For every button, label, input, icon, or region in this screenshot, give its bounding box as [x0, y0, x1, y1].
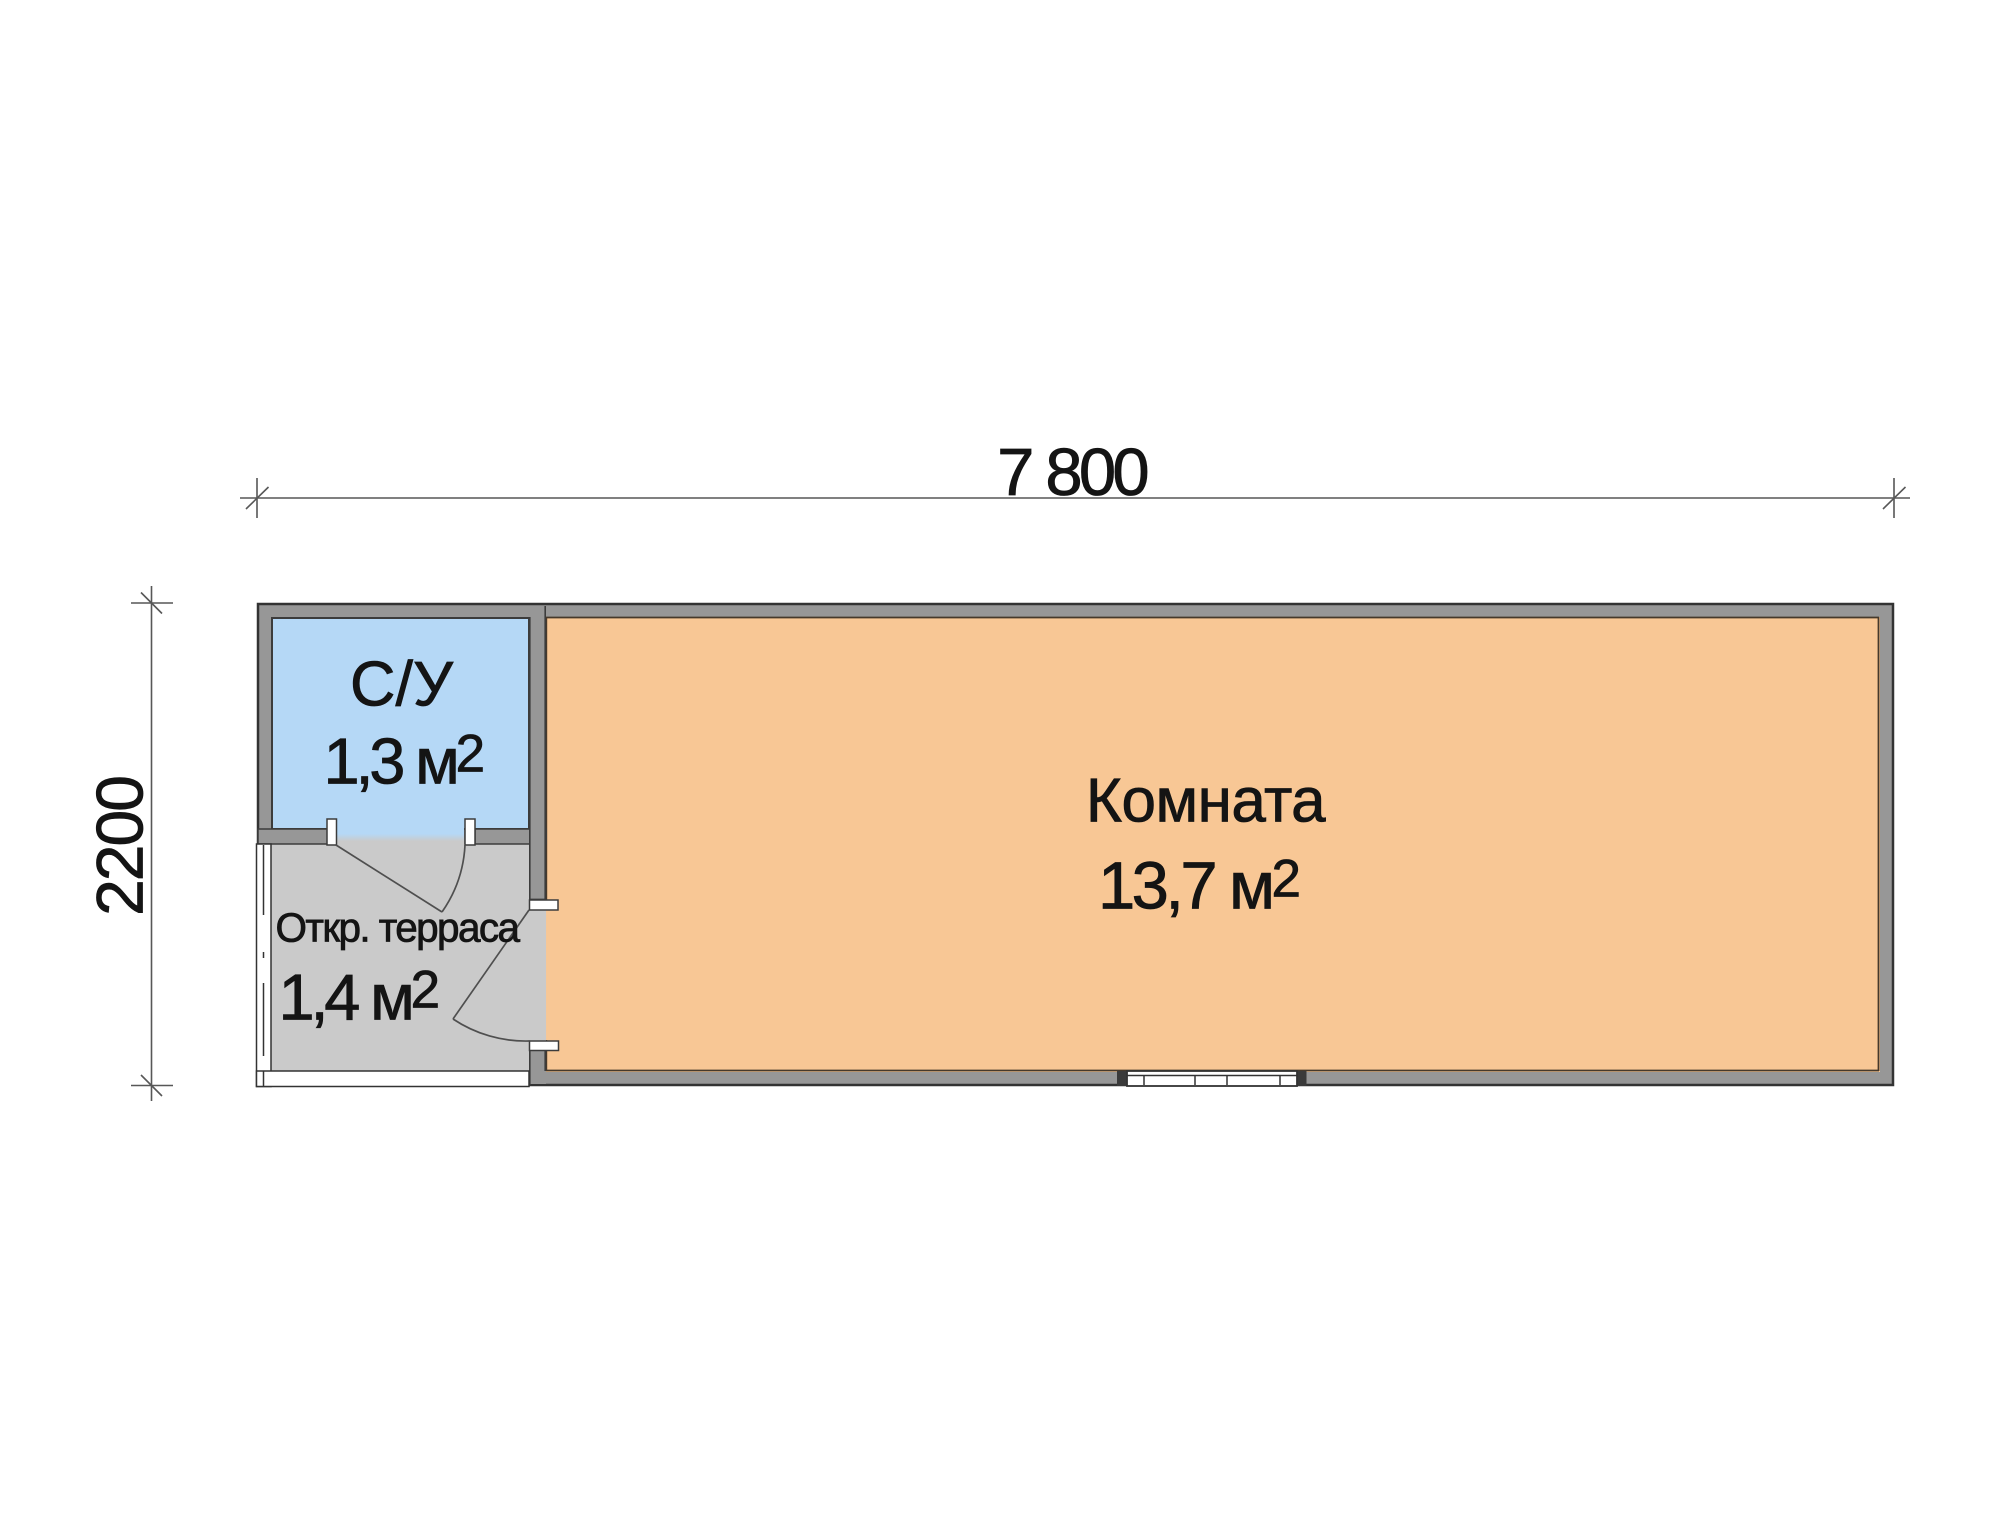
- svg-text:13,7 м2: 13,7 м2: [1098, 849, 1298, 924]
- svg-text:С/У: С/У: [350, 650, 454, 720]
- svg-text:Комната: Комната: [1086, 767, 1326, 836]
- svg-text:2200: 2200: [83, 777, 157, 916]
- svg-text:Откр. терраса: Откр. терраса: [276, 905, 521, 951]
- svg-text:7 800: 7 800: [997, 435, 1147, 510]
